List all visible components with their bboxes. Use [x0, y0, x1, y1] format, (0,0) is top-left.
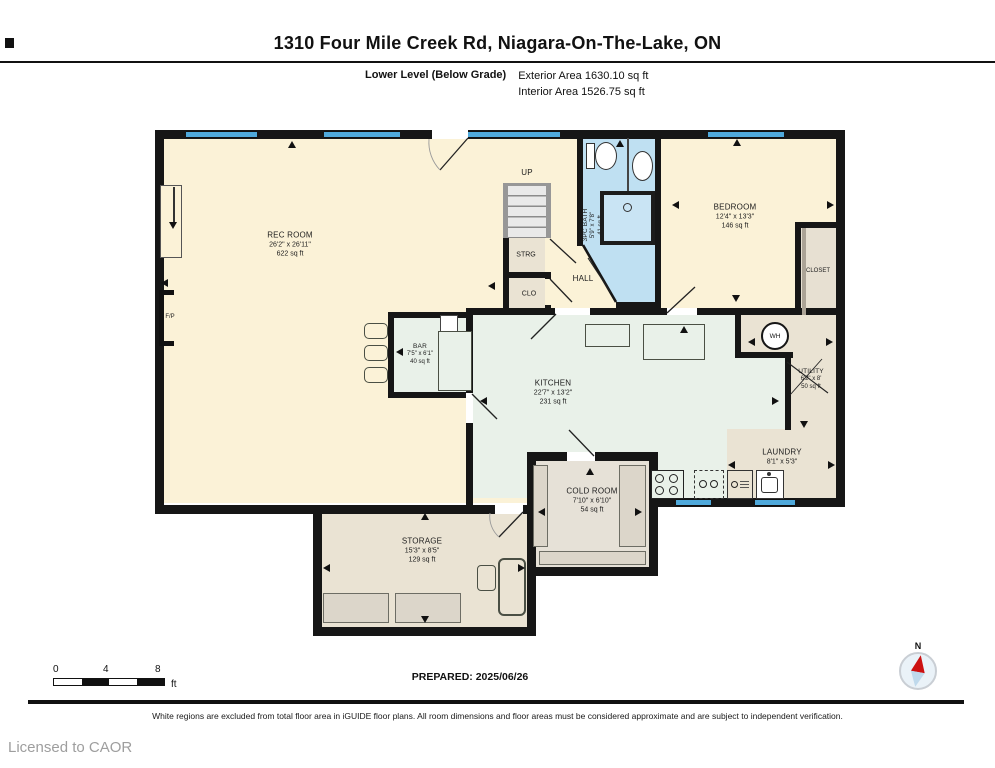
dimension-arrow [733, 139, 741, 146]
level-summary: Lower Level (Below Grade) Exterior Area … [365, 69, 648, 101]
dishwasher-icon [694, 470, 724, 499]
dimension-arrow [421, 616, 429, 623]
dimension-arrow [680, 326, 688, 333]
room-label-kitchen: KITCHEN 22'7" x 13'2" 231 sq ft [534, 379, 572, 408]
bar-stool-icon [364, 367, 388, 383]
dimension-arrow [772, 397, 779, 405]
window [676, 499, 711, 506]
page-title: 1310 Four Mile Creek Rd, Niagara-On-The-… [0, 33, 995, 54]
wall [155, 505, 322, 514]
door-opening [667, 308, 697, 315]
kitchen-cabinet [585, 324, 630, 347]
washer-icon [727, 470, 753, 499]
wall [313, 505, 322, 636]
wall [527, 452, 567, 461]
dimension-arrow [488, 282, 495, 290]
bath-sink-icon [632, 151, 653, 181]
dimension-arrow [421, 513, 429, 520]
dimension-arrow [396, 348, 403, 356]
door-opening [432, 130, 468, 139]
room-label-storage: STORAGE 15'3" x 8'5" 129 sq ft [402, 537, 442, 566]
area-summary: Exterior Area 1630.10 sq ft Interior Are… [518, 69, 648, 101]
wall [388, 312, 472, 318]
dimension-arrow [828, 461, 835, 469]
room-label-bedroom: BEDROOM 12'4" x 13'3" 146 sq ft [714, 203, 757, 232]
interior-area: Interior Area 1526.75 sq ft [518, 85, 648, 101]
stairs-direction-line [173, 187, 175, 223]
dimension-arrow [616, 140, 624, 147]
wall [503, 309, 551, 315]
prepared-date: PREPARED: 2025/06/26 [0, 671, 940, 683]
window [708, 131, 784, 138]
wall [545, 272, 551, 279]
room-label-bath: 3PC BATH 5'9" x 7'8" 41 sq ft [582, 209, 606, 242]
wall [527, 567, 658, 576]
room-label-rec-room: REC ROOM 26'2" x 26'11" 622 sq ft [267, 231, 313, 260]
water-heater-icon: WH [761, 322, 789, 350]
dimension-arrow [323, 564, 330, 572]
window [186, 131, 257, 138]
dimension-arrow [800, 421, 808, 428]
dimension-arrow [586, 468, 594, 475]
dimension-arrow [728, 461, 735, 469]
kitchen-island [643, 324, 705, 360]
room-label-up: UP [521, 168, 533, 178]
wall [595, 452, 658, 461]
wall [785, 358, 791, 430]
north-label: N [896, 641, 940, 651]
wall [388, 392, 472, 398]
compass-icon: N [896, 641, 940, 696]
wall [655, 138, 661, 308]
wall [616, 302, 661, 308]
door-opening [495, 505, 523, 514]
wall [322, 505, 495, 514]
dimension-arrow [672, 201, 679, 209]
dimension-arrow [518, 564, 525, 572]
wall [836, 130, 845, 507]
shelf [539, 551, 646, 565]
room-label-clo: CLO [522, 289, 536, 298]
shelf [533, 465, 548, 547]
wall [697, 308, 845, 315]
disclaimer-text: White regions are excluded from total fl… [0, 711, 995, 721]
bar-stool-icon [364, 345, 388, 361]
room-label-utility: UTILITY 6'2" x 8' 50 sq ft [798, 368, 824, 392]
room-label-laundry: LAUNDRY 8'1" x 5'3" [762, 447, 802, 466]
dimension-arrow [635, 508, 642, 516]
shelf [323, 593, 389, 623]
floor-plan-page: 1310 Four Mile Creek Rd, Niagara-On-The-… [0, 0, 995, 768]
compass-rose-icon [898, 651, 938, 691]
window [755, 499, 795, 506]
dimension-arrow [538, 508, 545, 516]
bar-counter [438, 331, 472, 391]
stairs-up [503, 183, 551, 238]
toilet-tank-icon [586, 143, 595, 169]
license-text: Licensed to CAOR [8, 739, 132, 756]
exterior-area: Exterior Area 1630.10 sq ft [518, 69, 648, 85]
toilet-icon [595, 142, 617, 170]
wall [466, 423, 473, 505]
title-divider [0, 61, 995, 63]
room-label-closet: CLOSET [806, 268, 830, 276]
dimension-arrow [748, 338, 755, 346]
room-label-cold-room: COLD ROOM 7'10" x 6'10" 54 sq ft [566, 487, 617, 516]
laundry-sink-icon [756, 470, 784, 499]
window [324, 131, 400, 138]
chair-icon [477, 565, 496, 591]
wall [313, 627, 536, 636]
wall [590, 308, 667, 315]
dimension-arrow [732, 295, 740, 302]
stove-icon [651, 470, 684, 499]
shower-icon [600, 191, 655, 245]
vanity-divider [627, 138, 629, 195]
door-opening [555, 308, 590, 315]
wall [527, 567, 536, 636]
water-heater-label: WH [770, 333, 781, 340]
level-label: Lower Level (Below Grade) [365, 69, 506, 81]
dimension-arrow [480, 397, 487, 405]
room-label-fp: F/P [165, 314, 174, 322]
room-label-strg: STRG [516, 250, 535, 259]
room-label-bar: BAR 7'5" x 6'1" 40 sq ft [407, 343, 433, 367]
bar-stool-icon [364, 323, 388, 339]
dimension-arrow [826, 338, 833, 346]
dimension-arrow [161, 279, 168, 287]
wall [388, 312, 394, 398]
door-opening [466, 393, 473, 423]
dimension-arrow [827, 201, 834, 209]
wall [795, 222, 801, 315]
shelf [619, 465, 646, 547]
footer-divider [28, 700, 964, 704]
wall [503, 272, 551, 278]
door-opening [567, 452, 595, 461]
stairs-arrow-icon [169, 222, 177, 229]
room-label-hall: HALL [573, 274, 594, 284]
window [468, 131, 560, 138]
dimension-arrow [288, 141, 296, 148]
wall [545, 305, 551, 315]
floor-plan: WH [150, 127, 850, 643]
